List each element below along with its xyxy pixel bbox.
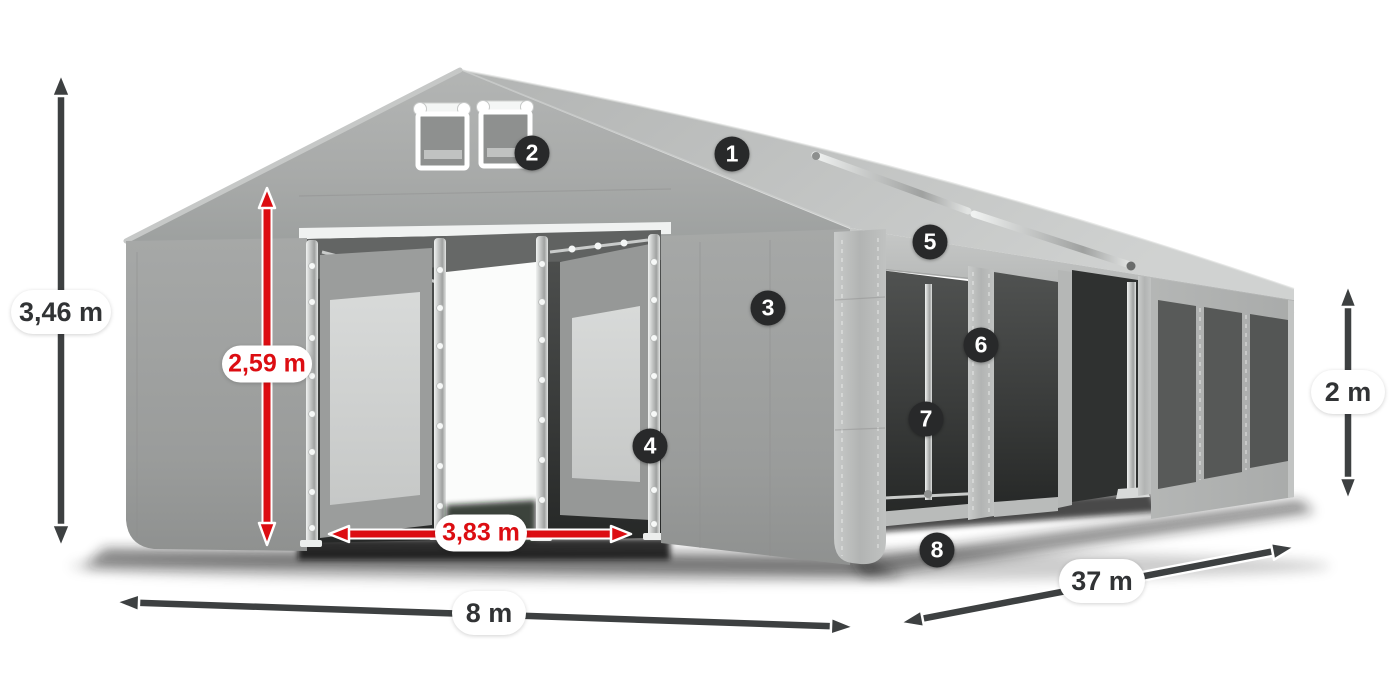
front-wall-right — [661, 229, 850, 565]
side-pole — [1127, 282, 1136, 490]
dimension-label-total-height: 3,46 m — [11, 290, 111, 334]
side-post — [968, 266, 994, 520]
dimension-label-length: 37 m — [1059, 559, 1145, 603]
feature-marker-8[interactable]: 8 — [920, 533, 955, 568]
feature-marker-7[interactable]: 7 — [909, 402, 944, 437]
side-window-opening — [994, 272, 1058, 510]
door-pole — [536, 236, 548, 538]
dimension-label-entrance-height: 2,59 m — [222, 346, 312, 383]
feature-marker-5[interactable]: 5 — [913, 225, 948, 260]
front-door-left — [300, 236, 460, 547]
feature-marker-4[interactable]: 4 — [633, 429, 668, 464]
tent-illustration — [0, 0, 1400, 700]
side-window-opening — [880, 270, 968, 516]
door-pole — [306, 240, 318, 544]
side-window — [1204, 307, 1242, 479]
front-opening-gap — [446, 233, 536, 542]
front-wall-left — [126, 238, 307, 551]
feature-marker-6[interactable]: 6 — [964, 328, 999, 363]
side-window — [1158, 300, 1196, 489]
feature-marker-2[interactable]: 2 — [515, 136, 550, 171]
tent-product-diagram: 3,46 m 2,59 m 3,83 m 8 m 37 m 2 m 1 2 3 … — [0, 0, 1400, 700]
dimension-label-entrance-width: 3,83 m — [435, 515, 527, 552]
door-curtain-right — [560, 244, 650, 520]
front-door-right — [530, 230, 663, 541]
feature-marker-3[interactable]: 3 — [751, 291, 786, 326]
side-window — [1250, 314, 1288, 468]
dimension-label-side-height: 2 m — [1311, 370, 1385, 414]
side-pole — [925, 284, 932, 500]
door-curtain-left — [320, 248, 432, 538]
feature-marker-1[interactable]: 1 — [715, 137, 750, 172]
vent-window-left — [414, 103, 471, 169]
dimension-label-width: 8 m — [452, 591, 526, 635]
